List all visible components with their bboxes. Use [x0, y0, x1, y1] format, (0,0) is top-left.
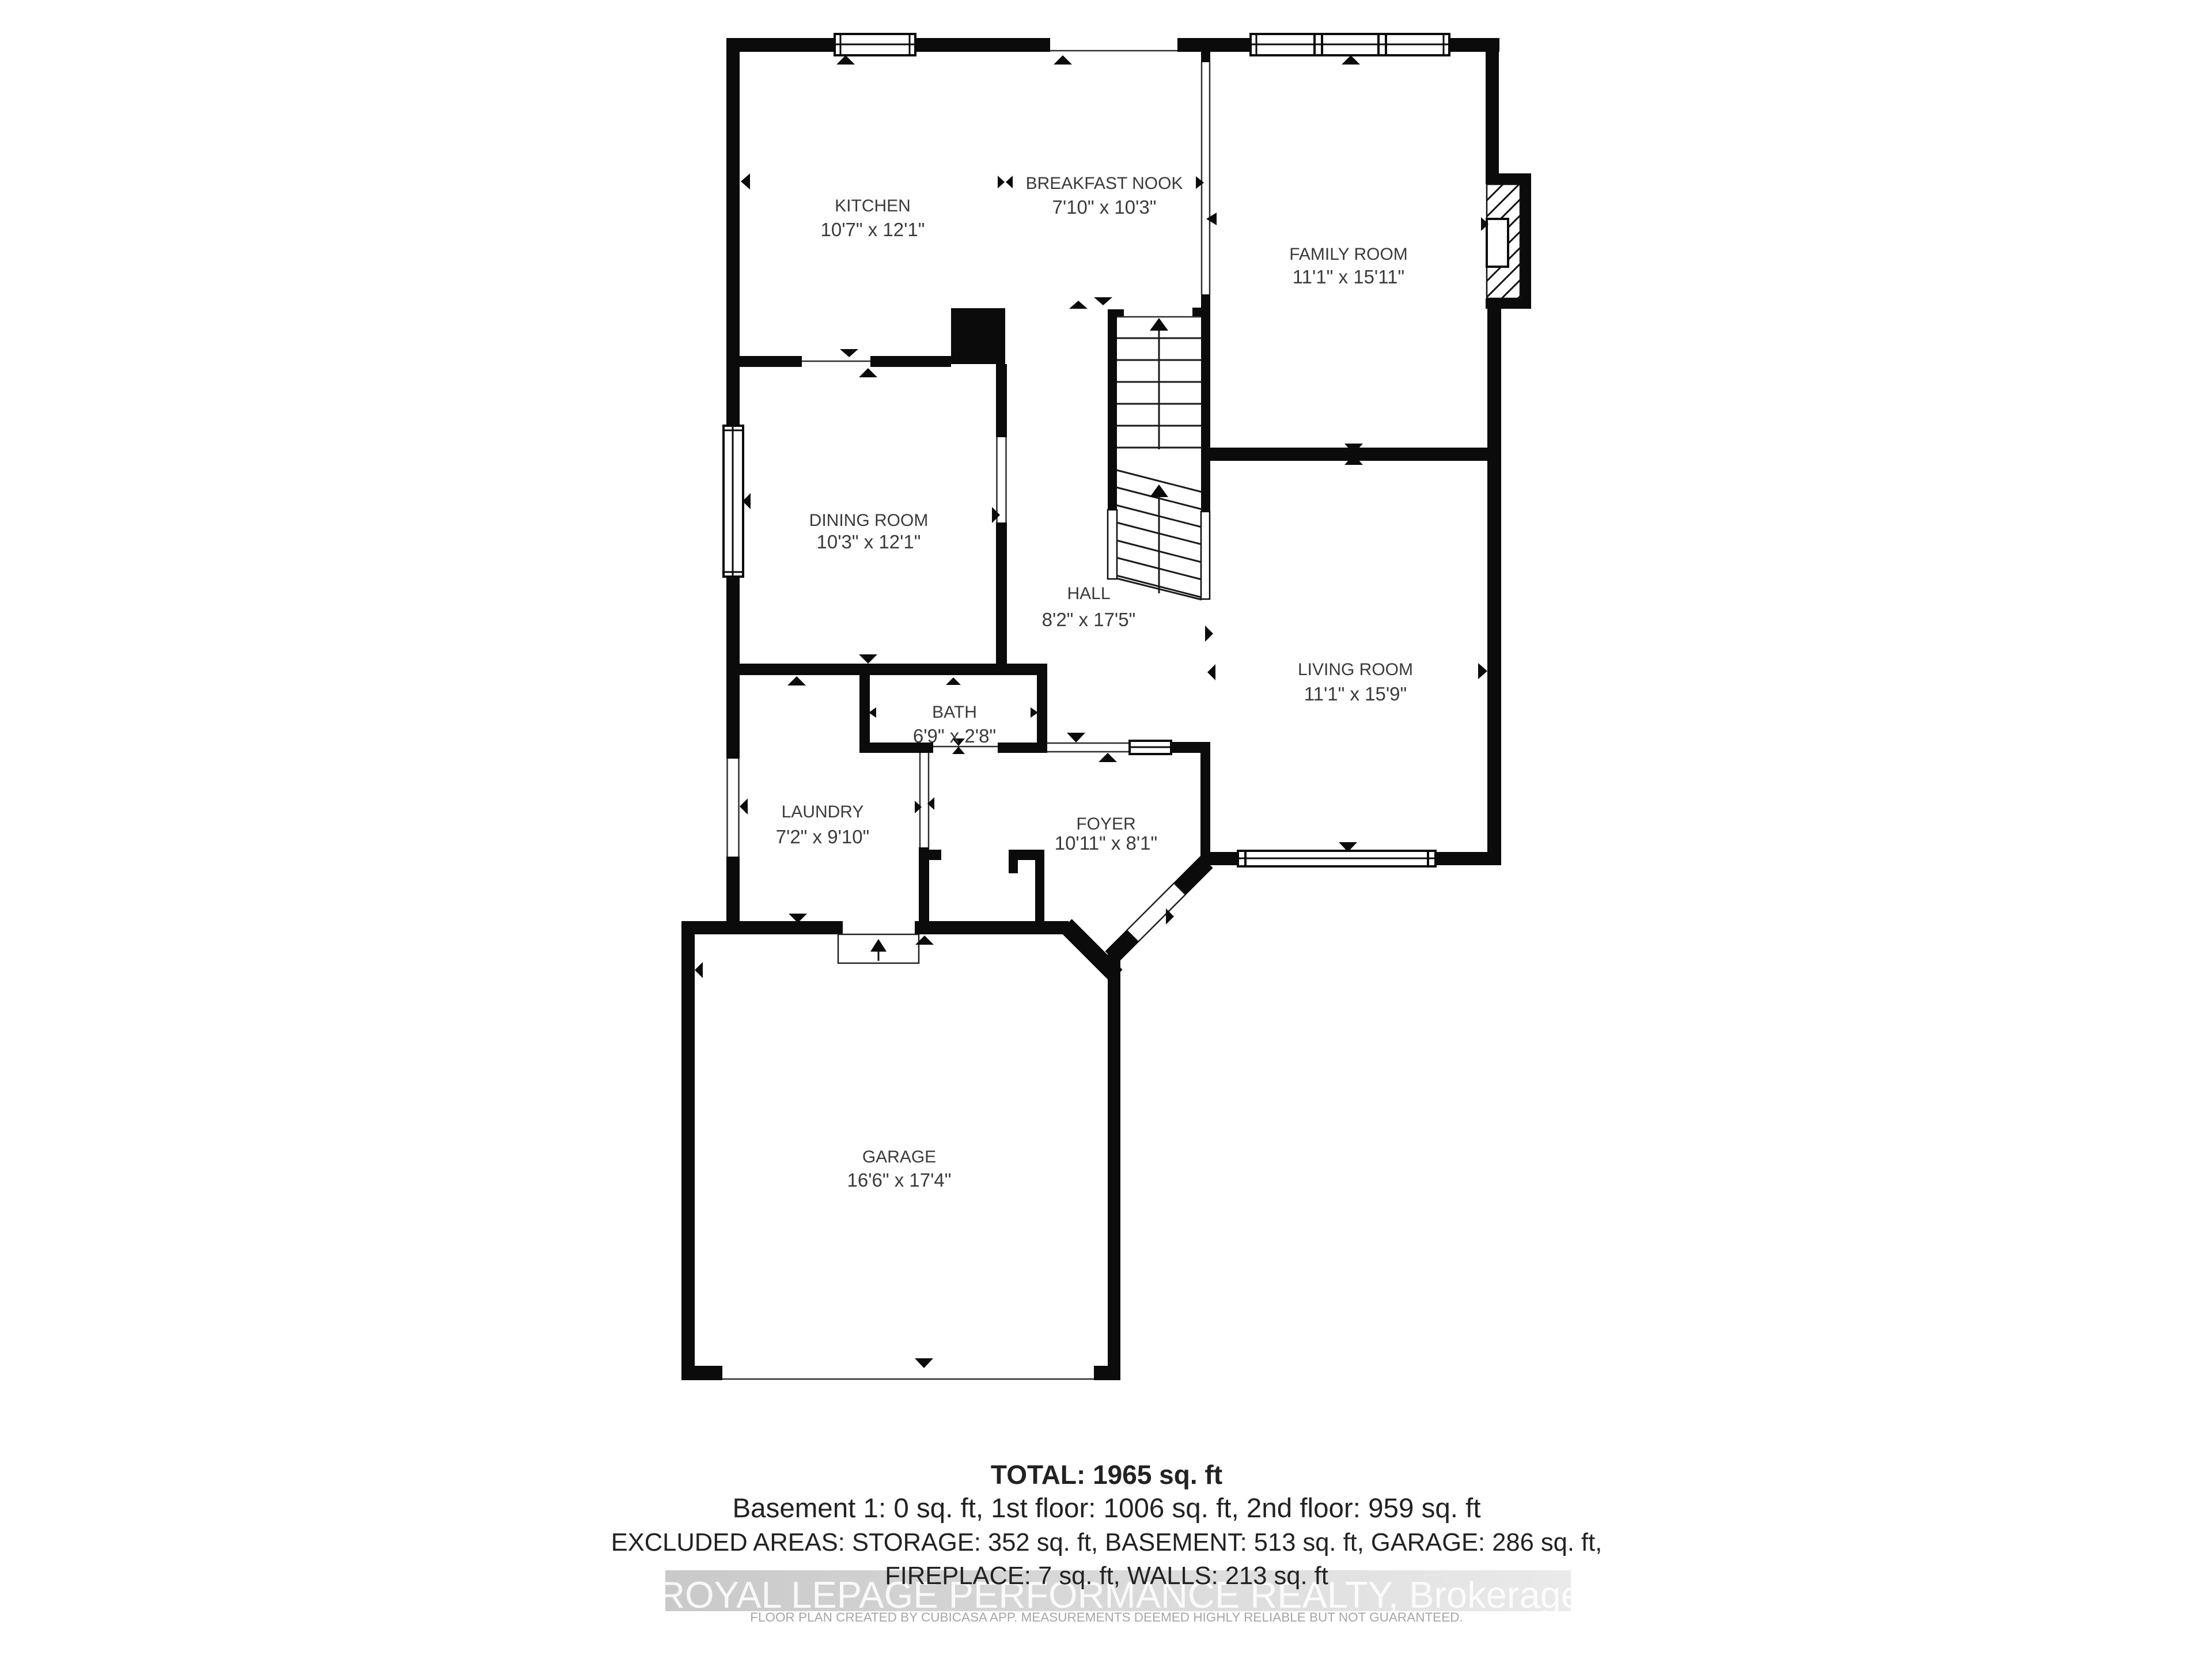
svg-text:BATH: BATH [932, 703, 977, 722]
svg-text:10'11" x 8'1": 10'11" x 8'1" [1055, 832, 1158, 854]
svg-text:10'3" x 12'1": 10'3" x 12'1" [817, 531, 921, 552]
svg-text:GARAGE: GARAGE [862, 1147, 936, 1166]
svg-text:Basement 1: 0 sq. ft, 1st floo: Basement 1: 0 sq. ft, 1st floor: 1006 sq… [732, 1493, 1480, 1524]
svg-text:16'6" x 17'4": 16'6" x 17'4" [847, 1169, 952, 1191]
svg-text:BREAKFAST NOOK: BREAKFAST NOOK [1026, 174, 1183, 193]
svg-text:6'9" x 2'8": 6'9" x 2'8" [913, 725, 996, 747]
svg-text:10'7" x 12'1": 10'7" x 12'1" [821, 219, 925, 240]
svg-text:EXCLUDED AREAS: STORAGE: 352 s: EXCLUDED AREAS: STORAGE: 352 sq. ft, BAS… [611, 1529, 1603, 1556]
svg-text:LAUNDRY: LAUNDRY [782, 802, 864, 821]
svg-text:KITCHEN: KITCHEN [835, 196, 911, 215]
svg-text:TOTAL: 1965 sq. ft: TOTAL: 1965 sq. ft [991, 1460, 1222, 1490]
svg-text:FAMILY ROOM: FAMILY ROOM [1289, 245, 1408, 264]
svg-text:11'1" x 15'11": 11'1" x 15'11" [1293, 266, 1404, 287]
svg-text:HALL: HALL [1067, 584, 1110, 603]
svg-text:FLOOR PLAN CREATED BY CUBICASA: FLOOR PLAN CREATED BY CUBICASA APP. MEAS… [750, 1610, 1463, 1624]
svg-text:8'2" x 17'5": 8'2" x 17'5" [1042, 609, 1136, 630]
svg-text:LIVING ROOM: LIVING ROOM [1298, 660, 1413, 679]
svg-text:FOYER: FOYER [1076, 815, 1135, 834]
svg-text:11'1" x 15'9": 11'1" x 15'9" [1304, 683, 1407, 704]
svg-text:7'2" x 9'10": 7'2" x 9'10" [776, 826, 870, 847]
svg-text:DINING ROOM: DINING ROOM [809, 511, 929, 530]
svg-text:FIREPLACE: 7 sq. ft, WALLS: 21: FIREPLACE: 7 sq. ft, WALLS: 213 sq. ft [885, 1562, 1328, 1590]
svg-text:7'10" x 10'3": 7'10" x 10'3" [1052, 196, 1157, 218]
